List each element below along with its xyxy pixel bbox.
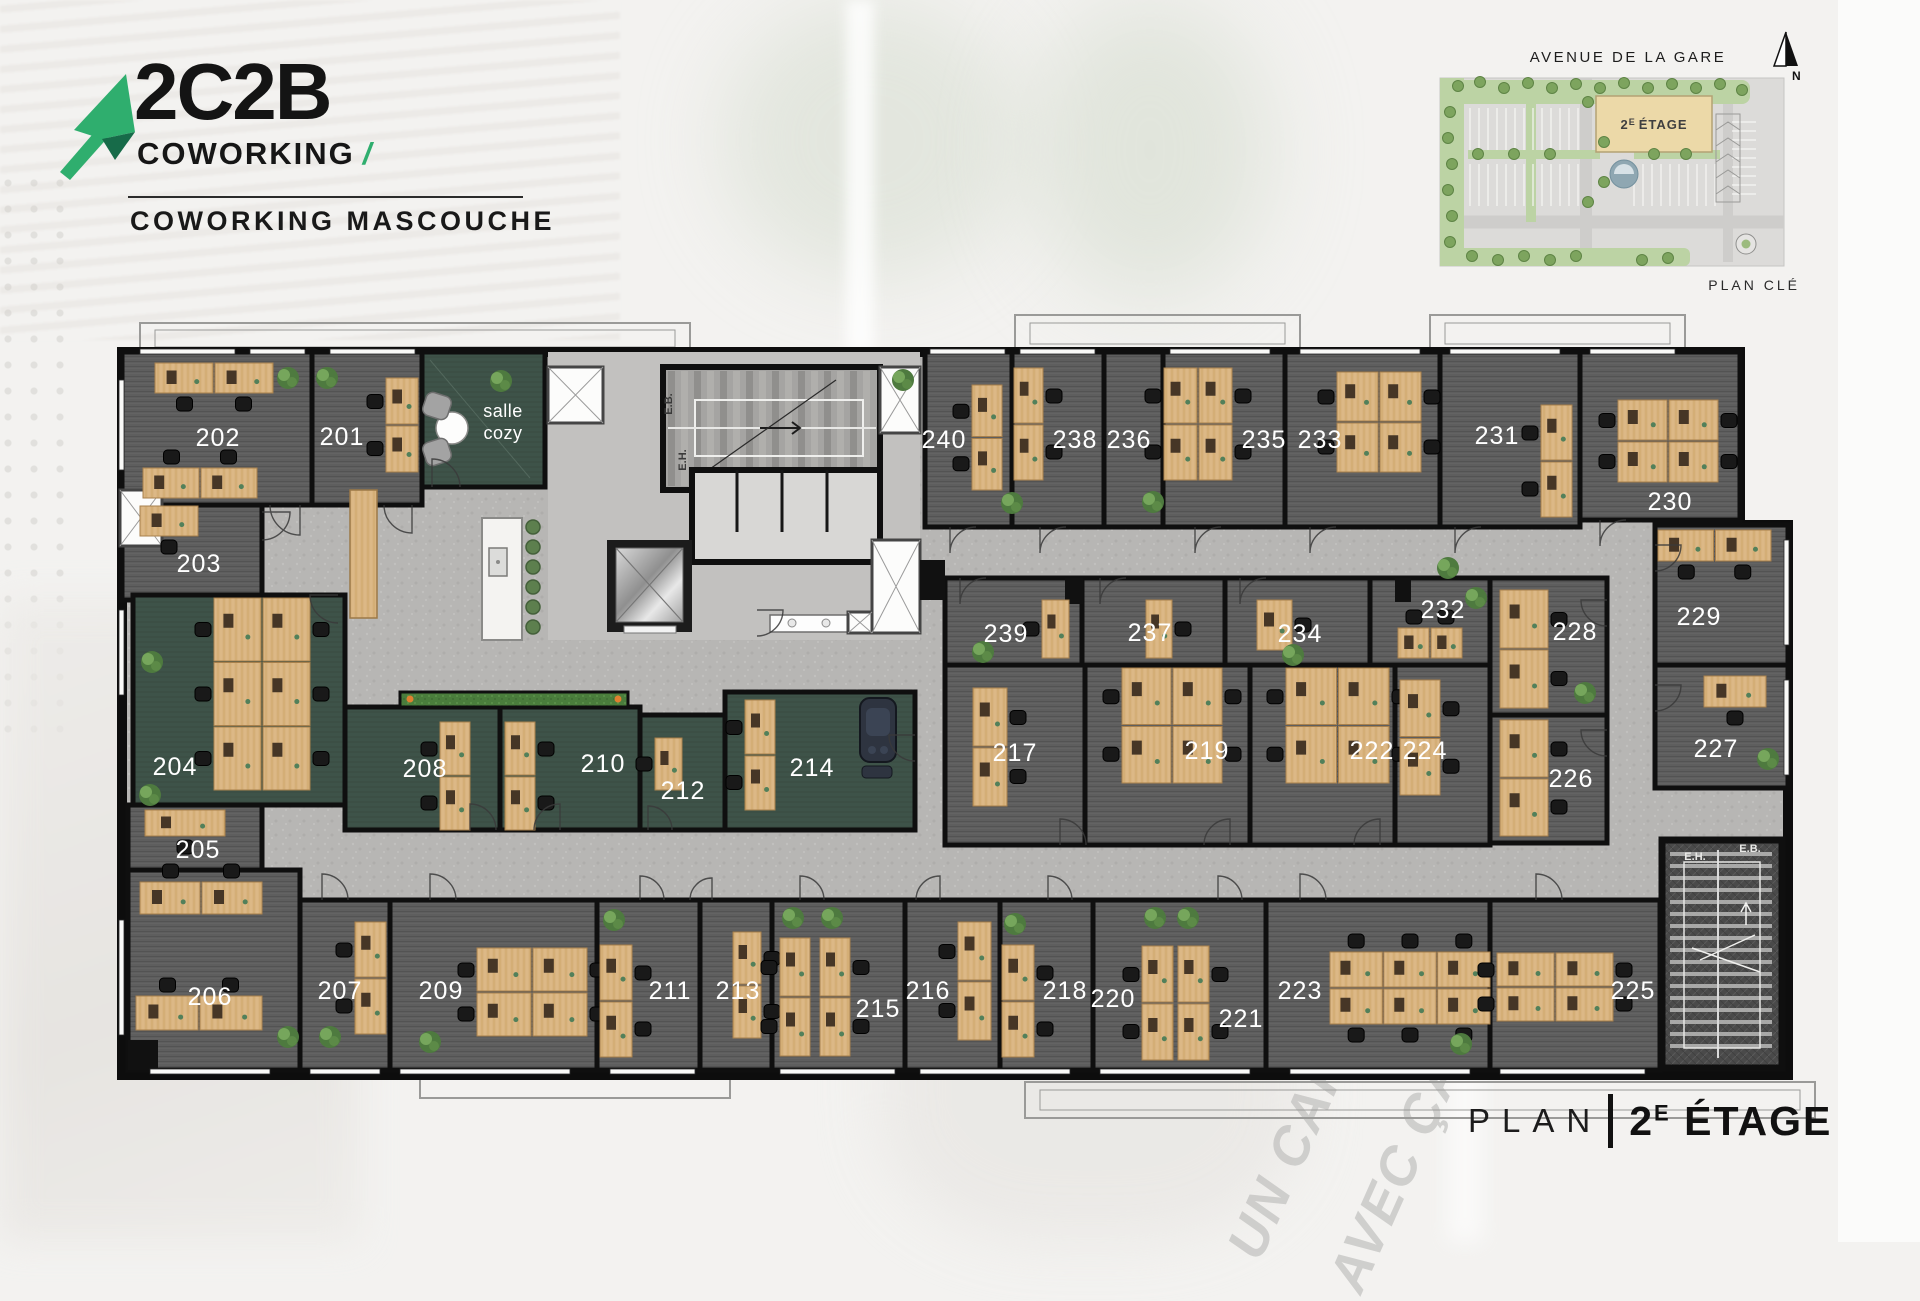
tree xyxy=(1447,211,1458,222)
kitchen-stool xyxy=(526,560,540,574)
plant xyxy=(1437,557,1459,579)
window xyxy=(119,380,124,470)
stair-tread xyxy=(1670,984,1772,988)
window xyxy=(330,349,415,354)
plant xyxy=(892,369,914,391)
room-label-207: 207 xyxy=(318,977,363,1005)
window xyxy=(1100,1069,1250,1074)
stair-label-eb-bottom: E.B. xyxy=(1739,843,1760,855)
window xyxy=(1784,680,1789,775)
stair-tread xyxy=(1670,1032,1772,1036)
stairs-bottom xyxy=(1662,840,1782,1068)
stair-tread xyxy=(1670,1020,1772,1024)
title-floor-sup: E xyxy=(1654,1100,1671,1125)
window xyxy=(1300,349,1420,354)
tree xyxy=(1737,85,1748,96)
koi-fish xyxy=(615,696,622,703)
window xyxy=(920,1069,1070,1074)
plant xyxy=(1450,1033,1472,1055)
tree xyxy=(1599,137,1610,148)
room-label-220: 220 xyxy=(1091,985,1136,1013)
plant xyxy=(1004,913,1026,935)
room-label-231: 231 xyxy=(1475,422,1520,450)
stair-label-eh-top: E.H. xyxy=(677,449,689,470)
window xyxy=(780,1069,895,1074)
title-floor: 2E ÉTAGE xyxy=(1629,1098,1832,1145)
key-plan-caption: PLAN CLÉ xyxy=(1708,277,1800,293)
tree xyxy=(1649,149,1660,160)
room-label-201: 201 xyxy=(320,423,365,451)
title-divider-bar xyxy=(1608,1094,1613,1148)
room-label-237: 237 xyxy=(1128,619,1173,647)
tree xyxy=(1545,255,1556,266)
window xyxy=(400,1069,570,1074)
stair-tread xyxy=(1670,996,1772,1000)
tree xyxy=(1453,81,1464,92)
plant xyxy=(1001,492,1023,514)
stair-tread xyxy=(1670,972,1772,976)
plant xyxy=(1757,748,1779,770)
window xyxy=(150,1069,270,1074)
room-label-208: 208 xyxy=(403,755,448,783)
room-label-202: 202 xyxy=(196,424,241,452)
stair-tread xyxy=(1670,900,1772,904)
grass-strip xyxy=(400,692,628,707)
kitchen-stool xyxy=(526,600,540,614)
room-label-228: 228 xyxy=(1553,618,1598,646)
room-label-223: 223 xyxy=(1278,977,1323,1005)
site-title: COWORKING MASCOUCHE xyxy=(130,206,555,237)
tree xyxy=(1619,78,1630,89)
room-label-238: 238 xyxy=(1053,426,1098,454)
plant xyxy=(277,367,299,389)
tree xyxy=(1571,251,1582,262)
plant xyxy=(603,909,625,931)
room-label-239: 239 xyxy=(984,620,1029,648)
room-label-230: 230 xyxy=(1648,488,1693,516)
room-label-204: 204 xyxy=(153,753,198,781)
plant xyxy=(1465,587,1487,609)
kitchen-stool xyxy=(526,520,540,534)
stair-label-eh-bottom: E.H. xyxy=(1684,851,1705,863)
room-label-235: 235 xyxy=(1242,426,1287,454)
room-label-218: 218 xyxy=(1043,977,1088,1005)
koi-fish xyxy=(407,696,414,703)
room-label-217: 217 xyxy=(993,739,1038,767)
key-plan-street-label: AVENUE DE LA GARE xyxy=(1530,49,1726,66)
room-label-215: 215 xyxy=(856,995,901,1023)
plant xyxy=(782,907,804,929)
tree xyxy=(1583,97,1594,108)
stair-tread xyxy=(1670,888,1772,892)
logo-subtitle-text: COWORKING xyxy=(137,136,355,171)
kitchen-cabinet xyxy=(350,490,377,618)
tree xyxy=(1445,107,1456,118)
title-floor-num: 2 xyxy=(1629,1098,1654,1144)
window xyxy=(1290,1069,1470,1074)
stair-label-eb-top: E.B. xyxy=(663,393,675,414)
tree xyxy=(1475,77,1486,88)
tree xyxy=(1667,79,1678,90)
tree xyxy=(1663,253,1674,264)
cozy-label-line2: cozy xyxy=(483,423,522,443)
title-floor-word: ÉTAGE xyxy=(1684,1098,1832,1144)
plant xyxy=(139,784,161,806)
room-label-211: 211 xyxy=(649,977,692,1005)
window xyxy=(1590,349,1675,354)
window xyxy=(1784,540,1789,645)
window xyxy=(1170,349,1270,354)
window xyxy=(930,349,1005,354)
plant xyxy=(141,651,163,673)
room-label-210: 210 xyxy=(581,750,626,778)
stair-tread xyxy=(1670,912,1772,916)
logo-arrow-icon xyxy=(58,68,138,186)
window xyxy=(1020,349,1095,354)
tree xyxy=(1467,251,1478,262)
room-label-227: 227 xyxy=(1694,735,1739,763)
stair-tread xyxy=(1670,960,1772,964)
window xyxy=(1450,349,1560,354)
tree xyxy=(1583,197,1594,208)
room-label-236: 236 xyxy=(1107,426,1152,454)
room-label-232: 232 xyxy=(1421,596,1466,624)
plant xyxy=(1142,491,1164,513)
room-label-224: 224 xyxy=(1403,737,1448,765)
key-plan: AVENUE DE LA GARE 2EÉTAGE N PLAN CL xyxy=(1428,22,1818,302)
logo-wordmark: 2C2B xyxy=(134,46,331,138)
north-label: N xyxy=(1792,69,1801,83)
room-label-234: 234 xyxy=(1278,620,1323,648)
window xyxy=(1500,1069,1645,1074)
room-label-206: 206 xyxy=(188,983,233,1011)
room-label-219: 219 xyxy=(1185,737,1230,765)
tree xyxy=(1473,149,1484,160)
kitchen-stool xyxy=(526,540,540,554)
tree xyxy=(1509,149,1520,160)
stair-tread xyxy=(1670,1008,1772,1012)
room-label-214: 214 xyxy=(790,754,835,782)
room-label-233: 233 xyxy=(1298,426,1343,454)
plant xyxy=(316,367,338,389)
room-label-213: 213 xyxy=(716,977,761,1005)
tree xyxy=(1691,83,1702,94)
tree xyxy=(1493,255,1504,266)
room-label-225: 225 xyxy=(1611,977,1656,1005)
kitchen-stool xyxy=(526,620,540,634)
window xyxy=(250,349,305,354)
page-title: PLAN 2E ÉTAGE xyxy=(1468,1094,1832,1148)
stair-tread xyxy=(1670,924,1772,928)
title-plan-word: PLAN xyxy=(1468,1102,1602,1140)
plant xyxy=(319,1026,341,1048)
logo-subtitle: COWORKING/ xyxy=(137,136,373,172)
tree xyxy=(1499,83,1510,94)
kitchen-island xyxy=(482,518,522,640)
plant xyxy=(277,1026,299,1048)
logo-slash: / xyxy=(363,136,374,171)
stair-tread xyxy=(1670,876,1772,880)
logo-divider xyxy=(128,196,523,198)
room-label-229: 229 xyxy=(1677,603,1722,631)
room-label-221: 221 xyxy=(1219,1005,1264,1033)
plant xyxy=(1177,907,1199,929)
room-label-240: 240 xyxy=(922,426,967,454)
cozy-label-line1: salle xyxy=(483,401,523,421)
tree xyxy=(1547,83,1558,94)
room-label-209: 209 xyxy=(419,977,464,1005)
elevator xyxy=(607,540,692,633)
tree xyxy=(1715,79,1726,90)
tree xyxy=(1545,149,1556,160)
stair-tread xyxy=(1670,936,1772,940)
plant xyxy=(1144,907,1166,929)
tree xyxy=(1445,237,1456,248)
tree xyxy=(1523,78,1534,89)
window xyxy=(610,1069,695,1074)
tree xyxy=(1681,149,1692,160)
room-label-212: 212 xyxy=(661,777,706,805)
north-arrow-icon: N xyxy=(1774,32,1801,83)
plant xyxy=(821,907,843,929)
tree xyxy=(1595,83,1606,94)
tree xyxy=(1519,251,1530,262)
plant xyxy=(419,1031,441,1053)
room-label-216: 216 xyxy=(906,977,951,1005)
window xyxy=(310,1069,380,1074)
room-label-226: 226 xyxy=(1549,765,1594,793)
room-label-205: 205 xyxy=(176,836,221,864)
plant xyxy=(490,370,512,392)
tree xyxy=(1643,83,1654,94)
tree xyxy=(1599,177,1610,188)
room-label-222: 222 xyxy=(1350,737,1395,765)
room-label-203: 203 xyxy=(177,550,222,578)
window xyxy=(119,610,124,695)
window xyxy=(140,349,235,354)
stair-tread xyxy=(1670,864,1772,868)
window xyxy=(119,920,124,1035)
tree xyxy=(1443,133,1454,144)
plant xyxy=(1574,682,1596,704)
tree xyxy=(1447,159,1458,170)
tree xyxy=(1443,185,1454,196)
kitchen-stool xyxy=(526,580,540,594)
tree xyxy=(1637,255,1648,266)
tree xyxy=(1571,79,1582,90)
